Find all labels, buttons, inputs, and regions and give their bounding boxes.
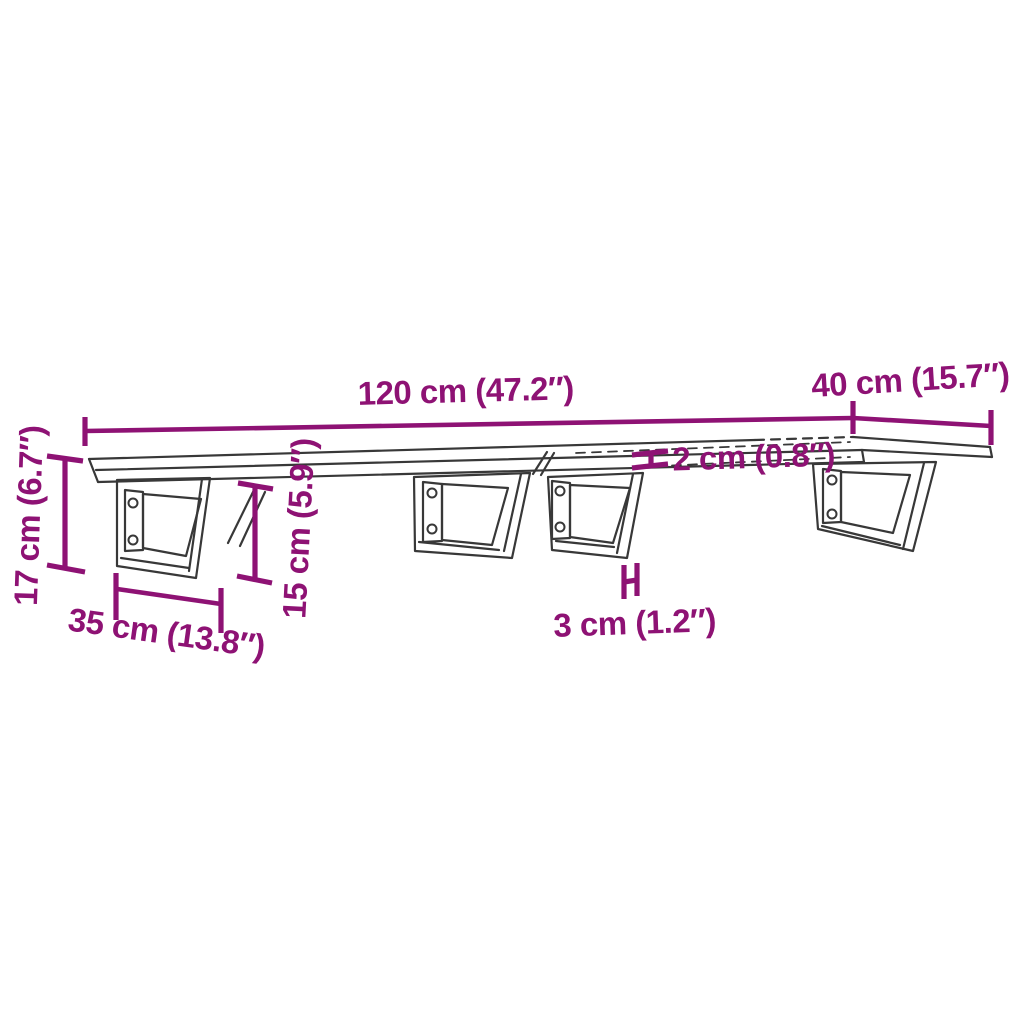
dimension-depth [853,410,991,445]
bracket-depth-label: 35 cm (13.8″) [66,600,267,664]
board-right-end-cap [990,447,992,457]
dimension-bar-width [624,563,637,599]
length-dimension-line [85,418,853,431]
bar-width-label: 3 cm (1.2″) [553,601,717,644]
total-height-serif-top [47,456,83,461]
bracket-1-back-edge-lines [228,490,265,546]
bracket-4 [813,462,936,551]
bracket-height-serif-bottom [237,576,272,583]
total-height-serif-bottom [47,565,85,572]
bracket-2-opening [442,484,508,545]
total-height-label: 17 cm (6.7″) [7,425,50,607]
bracket-3 [548,473,643,558]
bracket-4-screw-hole-top [828,476,837,485]
bracket-2-right-bar-line [504,474,521,551]
bracket-1 [117,478,265,578]
bar-width-connector [624,580,637,582]
dimension-total-height [47,456,85,572]
bracket-4-screw-hole-bottom [828,510,837,519]
shelf-dimension-diagram: 120 cm (47.2″) 40 cm (15.7″) 2 cm (0.8″)… [0,0,1024,1024]
bracket-2-screw-hole-bottom [428,525,437,534]
bracket-1-bottom-bar-line [121,558,189,568]
bracket-3-screw-hole-top [556,487,565,496]
bracket-3-screw-hole-bottom [556,523,565,532]
bracket-1-right-bar-line [189,479,202,571]
depth-label: 40 cm (15.7″) [810,355,1010,404]
bracket-4-opening [841,472,910,533]
board-right-top-edge [853,437,990,447]
board-front-right-corner [862,450,864,462]
bracket-2 [414,452,554,558]
board-right-bottom-edge [862,450,992,457]
bracket-height-serif-top [238,483,273,489]
bracket-4-bottom-bar-line [822,526,900,545]
bracket-2-bottom-bar-line [419,542,499,550]
depth-dimension-line [853,418,991,426]
bracket-depth-line [117,589,221,604]
bracket-1-screw-hole-bottom [129,536,138,545]
length-label: 120 cm (47.2″) [357,369,574,412]
diagram-canvas: 120 cm (47.2″) 40 cm (15.7″) 2 cm (0.8″)… [0,0,1024,1024]
thickness-label: 2 cm (0.8″) [672,435,836,477]
bracket-1-screw-hole-top [129,499,138,508]
bracket-2-screw-hole-top [428,489,437,498]
dimension-thickness [632,451,668,468]
dimension-bracket-height [237,483,273,583]
